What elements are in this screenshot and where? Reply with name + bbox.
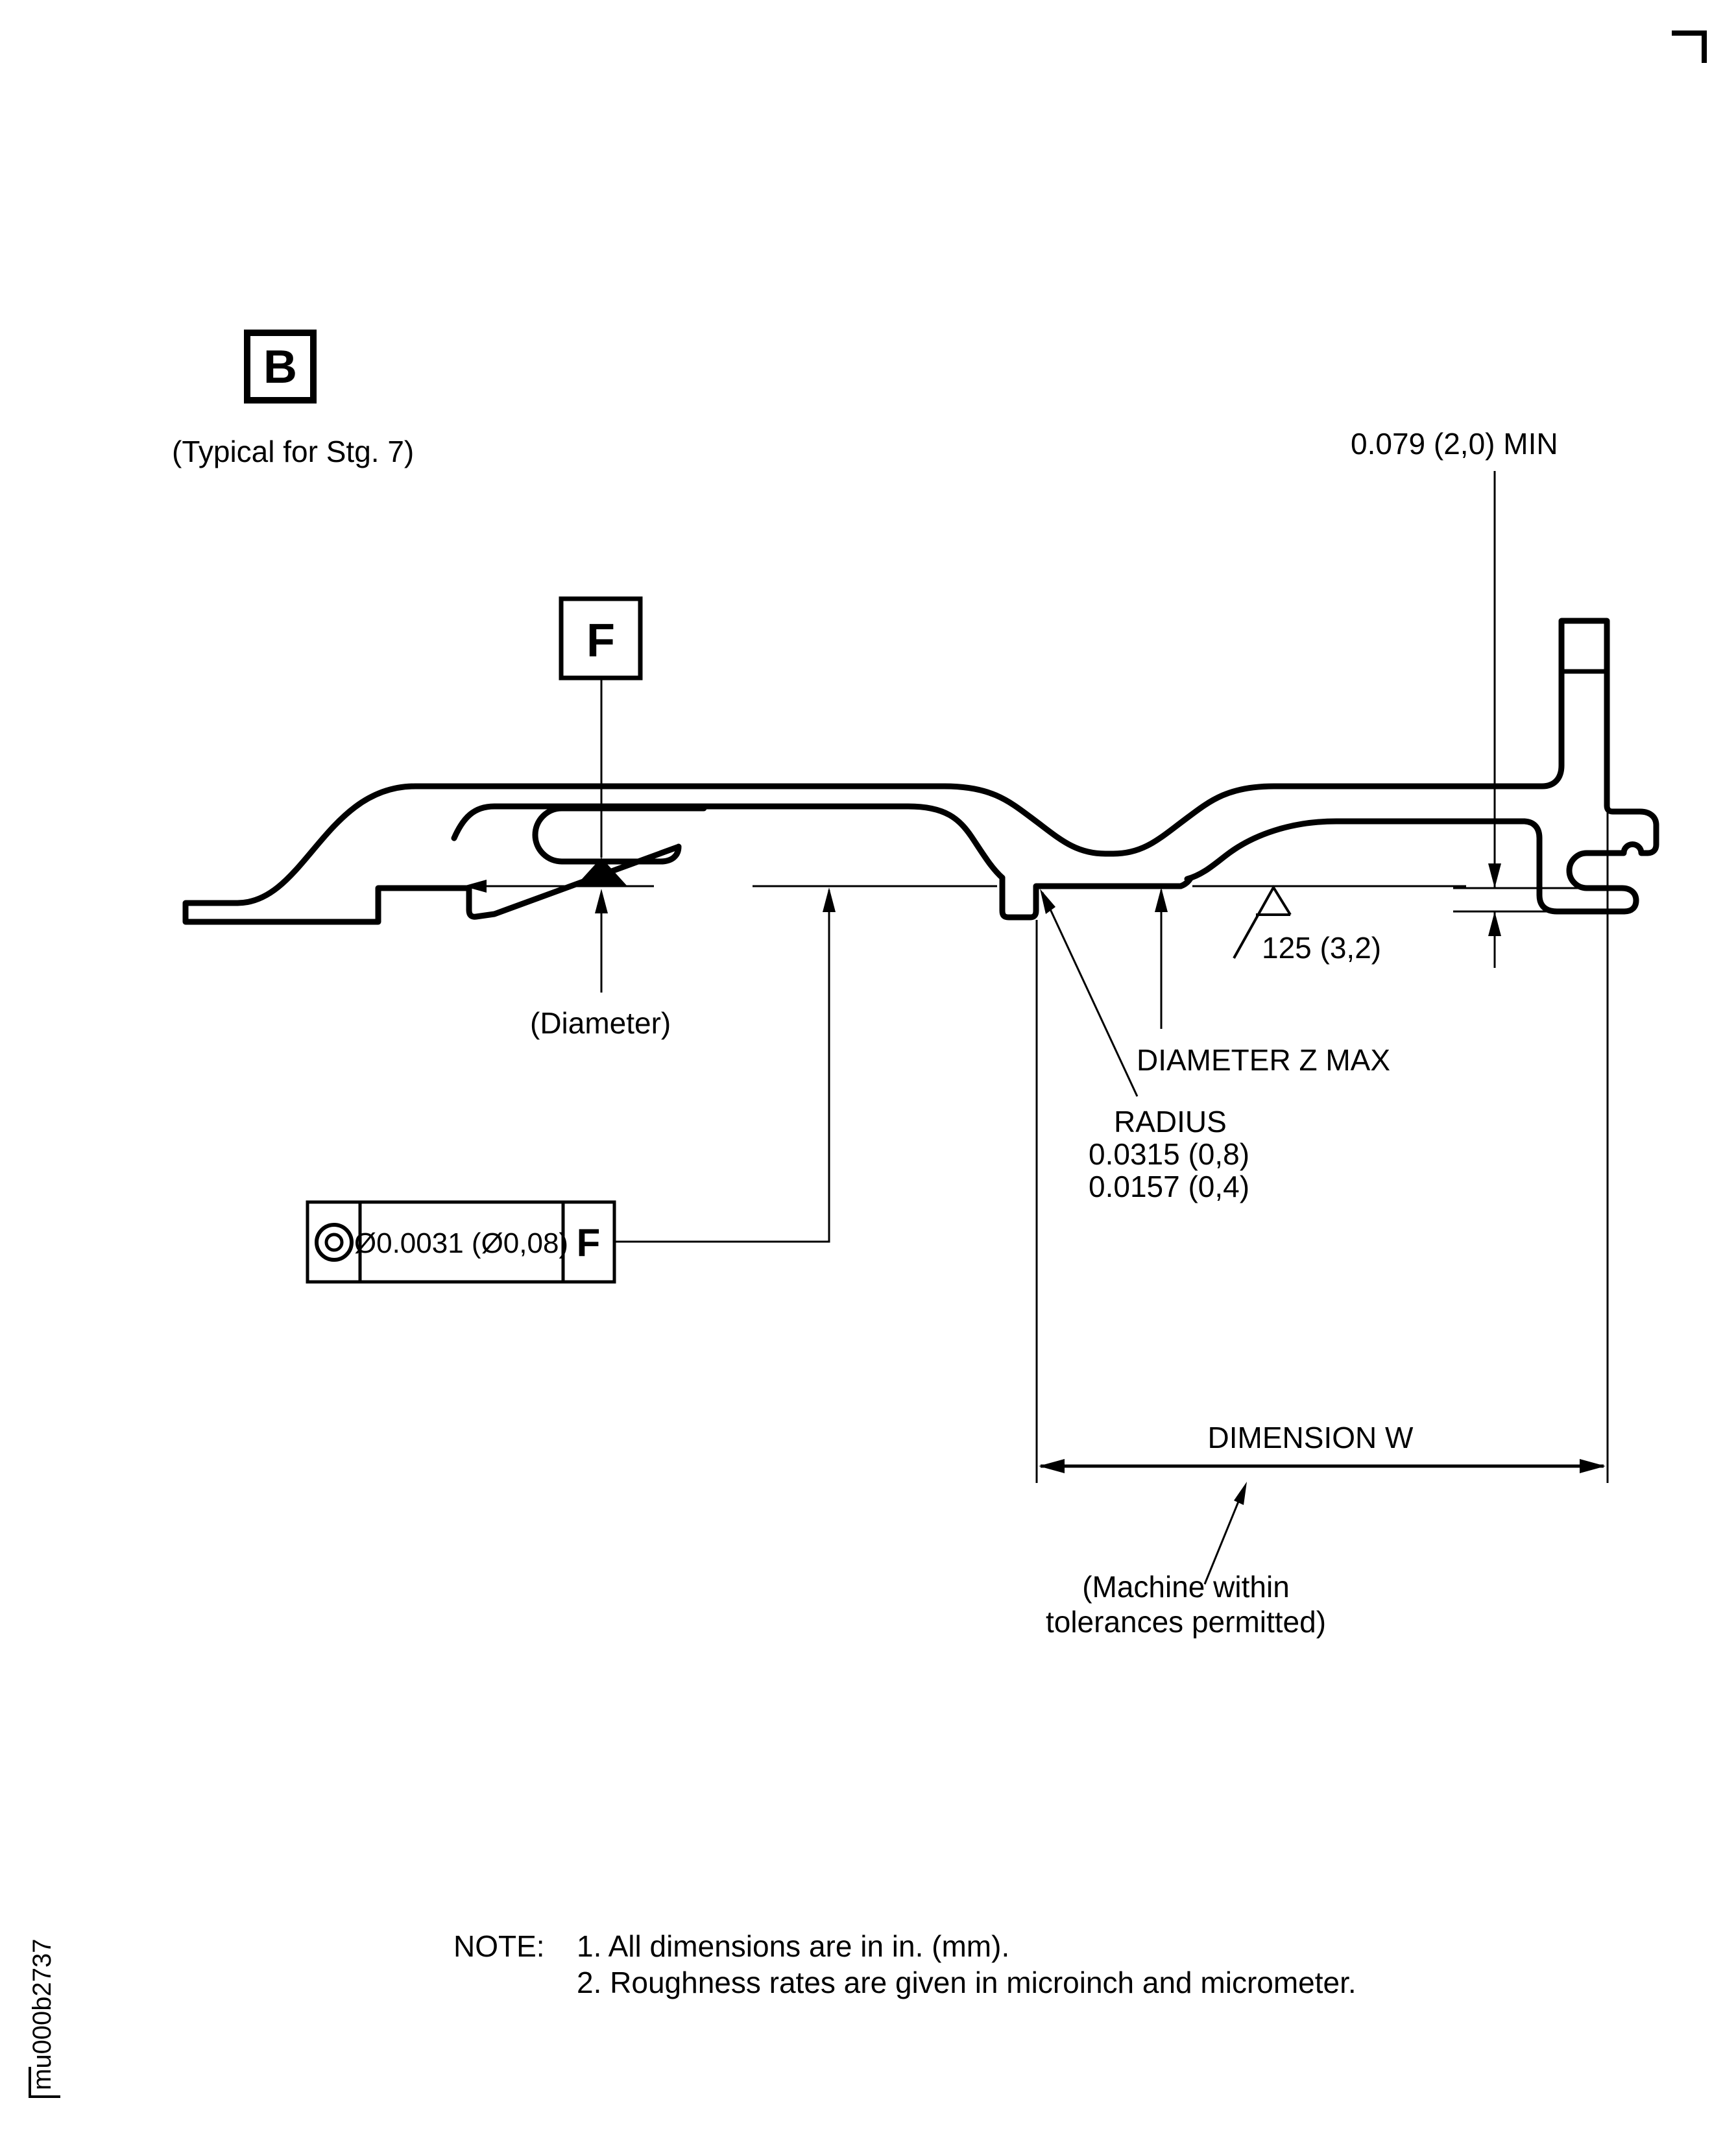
machine-note-arrow (1234, 1482, 1247, 1505)
typical-stage-note: (Typical for Stg. 7) (172, 435, 414, 468)
radius-leader-arrow (1040, 889, 1055, 914)
radius-value-2: 0.0157 (0,4) (1089, 1170, 1249, 1203)
radius-label: RADIUS (1114, 1105, 1227, 1139)
document-id-label: mu000b2737 (28, 1938, 56, 2090)
top-right-corner-mark (1672, 33, 1704, 63)
radius-leader (1043, 893, 1137, 1096)
fcf-datum-ref: F (577, 1221, 601, 1264)
top-surface-path (237, 621, 1656, 911)
feature-control-frame: Ø0.0031 (Ø0,08) F (307, 1202, 614, 1282)
min-wall-upper-arrow (1488, 863, 1501, 888)
concentricity-icon-inner (326, 1235, 342, 1250)
min-wall-label: 0.079 (2,0) MIN (1351, 427, 1558, 461)
concentricity-icon (317, 1225, 352, 1260)
arrowheads (463, 858, 1606, 1505)
datum-symbols: B F (247, 333, 640, 678)
fcf-leader (614, 890, 829, 1242)
diameter-leader-arrow (595, 889, 608, 913)
diameter-note-label: (Diameter) (530, 1006, 671, 1040)
machine-note-line1: (Machine within (1082, 1570, 1290, 1604)
datum-b-letter: B (263, 341, 297, 393)
min-wall-lower-arrow (1488, 911, 1501, 936)
note-label: NOTE: (453, 1929, 545, 1963)
datum-f-letter: F (586, 615, 615, 667)
diameter-z-arrow (1155, 887, 1168, 912)
dim-w-left-arrow (1039, 1459, 1065, 1473)
diameter-z-label: DIAMETER Z MAX (1137, 1043, 1390, 1077)
roughness-value-label: 125 (3,2) (1262, 931, 1381, 965)
fcf-tolerance-value: Ø0.0031 (Ø0,08) (354, 1227, 568, 1259)
drawing-canvas: B F Ø0.0031 (Ø0,08) F (Typical for Stg. … (0, 0, 1736, 2133)
note-line-2: 2. Roughness rates are given in microinc… (577, 1966, 1356, 1999)
text-annotations: (Typical for Stg. 7) 0.079 (2,0) MIN (Di… (28, 427, 1558, 2090)
fcf-leader-arrow (823, 887, 836, 912)
part-cross-section-outline (186, 621, 1656, 922)
note-line-1: 1. All dimensions are in in. (mm). (577, 1929, 1009, 1963)
machine-note-line2: tolerances permitted) (1046, 1605, 1326, 1639)
drawing-page: B F Ø0.0031 (Ø0,08) F (Typical for Stg. … (0, 0, 1736, 2133)
hook-lobe-path (535, 808, 704, 862)
dimension-w-label: DIMENSION W (1208, 1421, 1414, 1454)
dim-w-right-arrow (1580, 1459, 1606, 1473)
radius-value-1: 0.0315 (0,8) (1089, 1137, 1249, 1171)
